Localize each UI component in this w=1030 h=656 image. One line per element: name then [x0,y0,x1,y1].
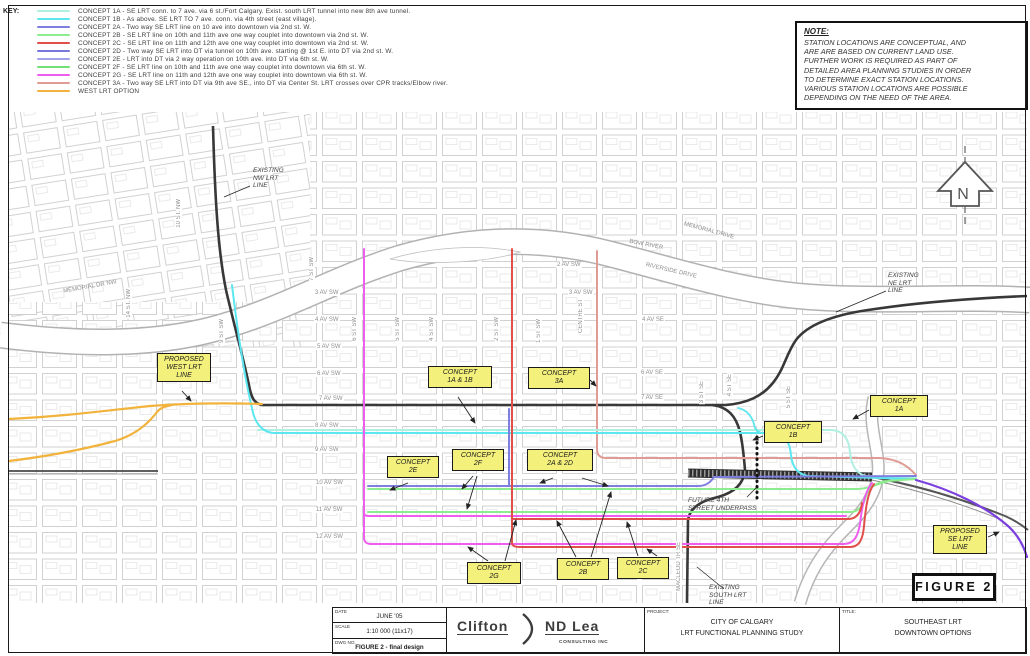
concept-2b-label: CONCEPT2B [557,558,609,580]
key-swatch-3a [37,82,70,84]
key-item-2e: CONCEPT 2E - LRT into DT via 2 way opera… [37,55,737,63]
key-item-2a: CONCEPT 2A - Two way SE LRT line on 10 a… [37,23,737,31]
street-label: 4 AV SE [641,317,665,323]
street-label: 4 AV SW [314,317,340,323]
logo-subtitle: CONSULTING INC [559,640,608,645]
drawing-sheet: N KEY: CONCEPT 1A - SE LRT conn. to 7 av… [0,0,1030,656]
concept-2a-2d-label: CONCEPT2A & 2D [527,449,593,471]
note-line-6: VARIOUS STATION LOCATIONS ARE POSSIBLE [804,84,1019,93]
note-line-3: FURTHER WORK IS REQUIRED AS PART OF [804,56,1019,65]
note-lines: STATION LOCATIONS ARE CONCEPTUAL, ANDARE… [804,38,1019,102]
title-block-meta: DATE JUNE '05 SCALE 1:10 000 (11x17) DWG… [333,608,446,653]
title-lines: SOUTHEAST LRT DOWNTOWN OPTIONS [840,618,1026,640]
street-label: CENTRE ST [578,298,584,334]
existing-nw-lrt-label: EXISTINGNW LRTLINE [253,167,284,190]
street-label: 11 AV SW [315,507,343,513]
key-label-1b: CONCEPT 1B - As above. SE LRT TO 7 ave. … [78,16,317,23]
note-line-1: STATION LOCATIONS ARE CONCEPTUAL, AND [804,38,1019,47]
title-line-1: SOUTHEAST LRT [840,618,1026,629]
key-label-west: WEST LRT OPTION [78,88,139,95]
street-label: 4 ST SW [429,316,435,342]
key-swatch-2c [37,42,70,44]
key-item-2g: CONCEPT 2G - SE LRT line on 11th and 12t… [37,71,737,79]
key-rows: CONCEPT 1A - SE LRT conn. to 7 ave. via … [37,7,737,95]
street-label: 3 AV SW [314,290,340,296]
date-row: DATE JUNE '05 [333,608,446,623]
project-line-2: LRT FUNCTIONAL PLANNING STUDY [645,629,839,640]
note-box: NOTE: STATION LOCATIONS ARE CONCEPTUAL, … [795,21,1028,110]
proposed-west-lrt-label: PROPOSEDWEST LRTLINE [157,353,211,382]
key-label-2d: CONCEPT 2D - Two way SE LRT into DT via … [78,48,393,55]
street-label: 7 AV SE [640,395,664,401]
key-swatch-2a [37,26,70,28]
project-section: PROJECT: CITY OF CALGARY LRT FUNCTIONAL … [644,608,839,653]
street-label: 7 AV SW [318,396,344,402]
note-title: NOTE: [804,27,1019,36]
scale-value: 1:10 000 (11x17) [333,628,446,635]
street-label: 1 ST SW [536,318,542,344]
street-label: 6 ST SW [352,316,358,342]
street-label: 8 AV SW [314,423,340,429]
key-swatch-west [37,90,70,92]
concept-2c-label: CONCEPT2C [617,557,669,579]
street-label: 2 AV SW [556,262,582,268]
street-label: 2 ST SW [494,316,500,342]
concept-1b-label: CONCEPT1B [764,421,822,443]
street-label: MACLEOD TR SE [676,541,682,592]
concept-3a-label: CONCEPT3A [528,367,590,389]
proposed-se-lrt-label: PROPOSEDSE LRTLINE [933,525,987,554]
note-line-7: DEPENDING ON THE NEED OF THE AREA. [804,93,1019,102]
existing-south-lrt-label: EXISTINGSOUTH LRTLINE [709,584,746,607]
key-item-west: WEST LRT OPTION [37,87,737,95]
street-label: 5 AV SW [316,344,342,350]
title-line-2: DOWNTOWN OPTIONS [840,629,1026,640]
key-swatch-2f [37,66,70,68]
note-line-5: TO DETERMINE EXACT STATION LOCATIONS. [804,75,1019,84]
street-label: 5 ST SW [395,316,401,342]
north-label: N [957,186,969,203]
key-label-3a: CONCEPT 3A - Two way SE LRT into DT via … [78,80,448,87]
title-block: DATE JUNE '05 SCALE 1:10 000 (11x17) DWG… [332,607,1027,654]
scale-row: SCALE 1:10 000 (11x17) [333,623,446,638]
key-title: KEY: [3,8,19,15]
existing-ne-lrt-label: EXISTINGNE LRTLINE [888,272,919,295]
street-label: 6 AV SE [640,370,664,376]
key-label-2f: CONCEPT 2F - SE LRT line on 10th and 11t… [78,64,366,71]
street-label: 10 ST. NW [176,198,182,229]
logo-clifton: Clifton [457,618,508,635]
concept-2f-label: CONCEPT2F [452,449,504,471]
project-lines: CITY OF CALGARY LRT FUNCTIONAL PLANNING … [645,618,839,640]
street-label: 6 AV SW [316,371,342,377]
key-item-2c: CONCEPT 2C - SE LRT line on 11th and 12t… [37,39,737,47]
key-swatch-2d [37,50,70,52]
project-line-1: CITY OF CALGARY [645,618,839,629]
logo-arc [521,612,543,646]
title-label: TITLE: [842,609,856,614]
key-swatch-2e [37,58,70,60]
street-label: 3 AV SW [568,290,594,296]
figure-number-box: FIGURE 2 [912,573,996,601]
key-item-2b: CONCEPT 2B - SE LRT line on 10th and 11t… [37,31,737,39]
street-label: 10 AV SW [315,480,344,486]
note-line-4: DETAILED AREA PLANNING STUDIES IN ORDER [804,66,1019,75]
key-item-2f: CONCEPT 2F - SE LRT line on 10th and 11t… [37,63,737,71]
date-value: JUNE '05 [333,613,446,620]
street-label: 3 ST SE [699,380,705,404]
project-label: PROJECT: [647,609,669,614]
key-swatch-1b [37,18,70,20]
key-label-1a: CONCEPT 1A - SE LRT conn. to 7 ave. via … [78,8,410,15]
key-swatch-2g [37,74,70,76]
concept-1a-1b-label: CONCEPT1A & 1B [428,366,492,388]
street-label: 9 ST SW [219,318,225,344]
note-line-2: ARE ARE BASED ON CURRENT LAND USE. [804,47,1019,56]
key-swatch-1a [37,10,70,12]
concept-2g-label: CONCEPT2G [467,562,521,584]
key-item-2d: CONCEPT 2D - Two way SE LRT into DT via … [37,47,737,55]
concept-2e-label: CONCEPT2E [387,456,439,478]
consultant-logo: Clifton ND Lea CONSULTING INC [446,608,644,653]
concept-1a-label: CONCEPT1A [870,395,928,417]
street-label: 14 ST. NW [126,288,132,319]
street-label: 5 ST SE [786,385,792,409]
dwg-value: FIGURE 2 - final design [333,644,446,651]
logo-ndlea: ND Lea [545,618,599,635]
key-item-3a: CONCEPT 3A - Two way SE LRT into DT via … [37,79,737,87]
key-label-2b: CONCEPT 2B - SE LRT line on 10th and 11t… [78,32,368,39]
key-item-1b: CONCEPT 1B - As above. SE LRT TO 7 ave. … [37,15,737,23]
dwg-row: DWG NO. FIGURE 2 - final design [333,639,446,653]
street-label: 9 AV SW [314,447,340,453]
street-label: 7 ST SW [309,256,315,282]
street-label: 12 AV SW [315,534,344,540]
key-label-2e: CONCEPT 2E - LRT into DT via 2 way opera… [78,56,329,63]
key-label-2a: CONCEPT 2A - Two way SE LRT line on 10 a… [78,24,311,31]
street-label: 4 ST SE [727,373,733,397]
key-label-2c: CONCEPT 2C - SE LRT line on 11th and 12t… [78,40,369,47]
key-label-2g: CONCEPT 2G - SE LRT line on 11th and 12t… [78,72,367,79]
future-4th-street-underpass-label: FUTURE 4THSTREET UNDERPASS [688,497,756,512]
key-item-1a: CONCEPT 1A - SE LRT conn. to 7 ave. via … [37,7,737,15]
key-swatch-2b [37,34,70,36]
title-section: TITLE: SOUTHEAST LRT DOWNTOWN OPTIONS [839,608,1026,653]
figure-label: FIGURE 2 [915,580,993,594]
